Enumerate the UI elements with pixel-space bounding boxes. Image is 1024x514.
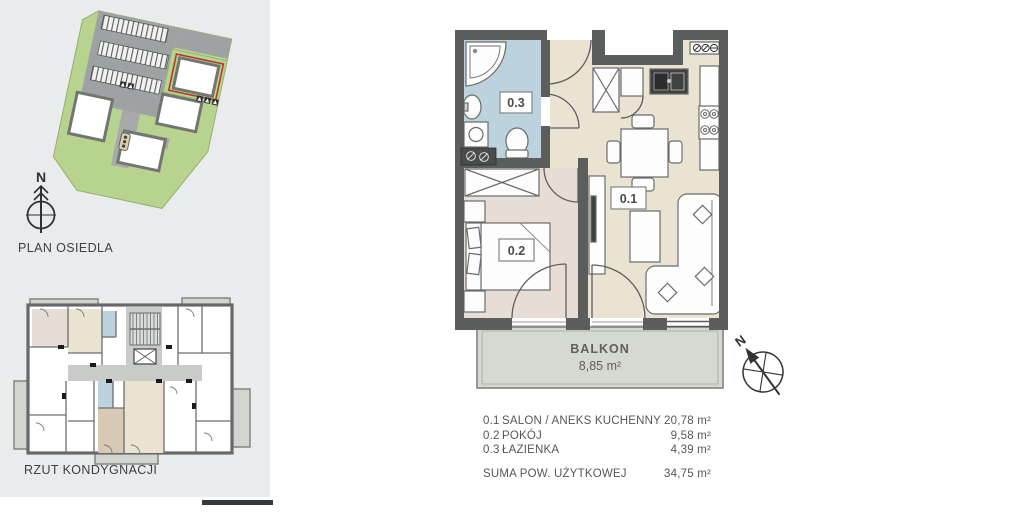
legend-room-name: POKÓJ	[502, 429, 671, 444]
dining-table	[621, 129, 668, 177]
room-label-03: 0.3	[507, 96, 524, 110]
site-compass-n-label: N	[36, 169, 46, 185]
page: N PLAN OSIEDLA	[0, 0, 1024, 514]
storey-corridor	[68, 365, 202, 381]
building-4	[69, 92, 113, 141]
legend-room-area: 20,78 m²	[664, 414, 711, 429]
legend-room-id: 0.2	[483, 429, 502, 444]
tv	[591, 196, 596, 242]
room-label-01: 0.1	[620, 192, 637, 206]
balcony	[477, 327, 723, 388]
chair	[669, 141, 682, 163]
elevator	[134, 349, 156, 364]
other-apartment-room	[32, 309, 68, 347]
utility-box	[461, 148, 496, 165]
nightstand	[464, 201, 485, 222]
chair	[632, 115, 654, 128]
window	[667, 322, 709, 327]
legend-row: 0.1 SALON / ANEKS KUCHENNY 20,78 m²	[483, 414, 711, 429]
chair	[607, 141, 620, 163]
other-apartment-room	[68, 309, 102, 353]
apartment-room-main	[124, 381, 164, 453]
pillow	[467, 253, 481, 274]
site-plan-rotated-group	[48, 8, 232, 215]
building-highlighted	[173, 58, 219, 97]
storey-plan-label: RZUT KONDYGNACJI	[24, 463, 157, 477]
apartment-room-small	[98, 408, 124, 453]
room-label-02: 0.2	[508, 244, 525, 258]
plan-compass-n-label: N	[732, 332, 748, 350]
site-compass	[26, 186, 56, 233]
apartment-bathroom	[98, 381, 113, 408]
legend-row: 0.3 ŁAZIENKA 4,39 m²	[483, 443, 711, 458]
sidebar: N PLAN OSIEDLA	[0, 0, 270, 497]
bottom-divider-bar	[202, 500, 273, 505]
staircase	[130, 313, 160, 345]
legend-total-area: 34,75 m²	[664, 467, 711, 482]
toilet-cistern	[506, 150, 528, 158]
shaft-symbol-box	[690, 42, 719, 54]
legend-total-row: SUMA POW. UŻYTKOWEJ 34,75 m²	[483, 467, 711, 482]
balcony-label: BALKON	[570, 342, 629, 356]
legend-row: 0.2 POKÓJ 9,58 m²	[483, 429, 711, 444]
legend-room-id: 0.1	[483, 414, 502, 429]
other-apartment-bath	[102, 311, 116, 337]
legend-room-id: 0.3	[483, 443, 502, 458]
fridge	[621, 68, 643, 96]
legend-room-name: ŁAZIENKA	[502, 443, 671, 458]
site-plan-map: N	[0, 0, 270, 250]
apartment-plan: 0.3 0.2 0.1 BALKON 8,85 m² N	[450, 22, 795, 407]
washing-machine	[464, 122, 488, 147]
legend-room-area: 4,39 m²	[671, 443, 711, 458]
pillow	[467, 227, 481, 248]
coffee-table	[630, 211, 660, 262]
building-2	[157, 94, 202, 132]
storey-plan-map	[6, 293, 264, 465]
site-plan-label: PLAN OSIEDLA	[18, 241, 113, 255]
nightstand	[464, 291, 485, 312]
balcony-area: 8,85 m²	[579, 359, 621, 373]
legend-room-area: 9,58 m²	[671, 429, 711, 444]
legend-total-label: SUMA POW. UŻYTKOWEJ	[483, 467, 664, 482]
area-legend: 0.1 SALON / ANEKS KUCHENNY 20,78 m² 0.2 …	[483, 414, 711, 481]
legend-room-name: SALON / ANEKS KUCHENNY	[502, 414, 664, 429]
plan-compass: N	[720, 323, 795, 406]
